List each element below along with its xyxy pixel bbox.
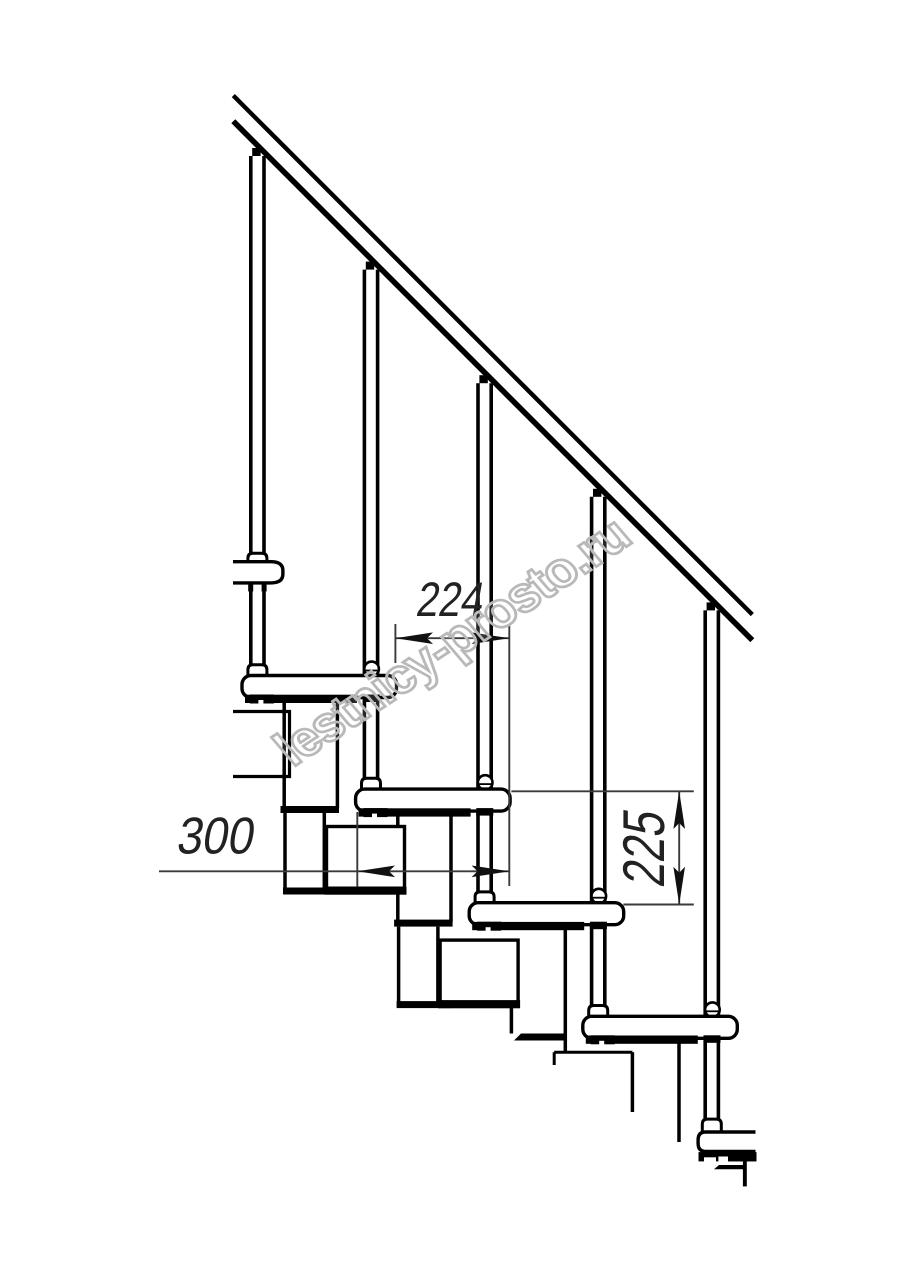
- svg-text:lestnicy-prosto.ru: lestnicy-prosto.ru: [263, 507, 641, 776]
- svg-text:225: 225: [612, 804, 678, 891]
- svg-text:300: 300: [173, 807, 260, 865]
